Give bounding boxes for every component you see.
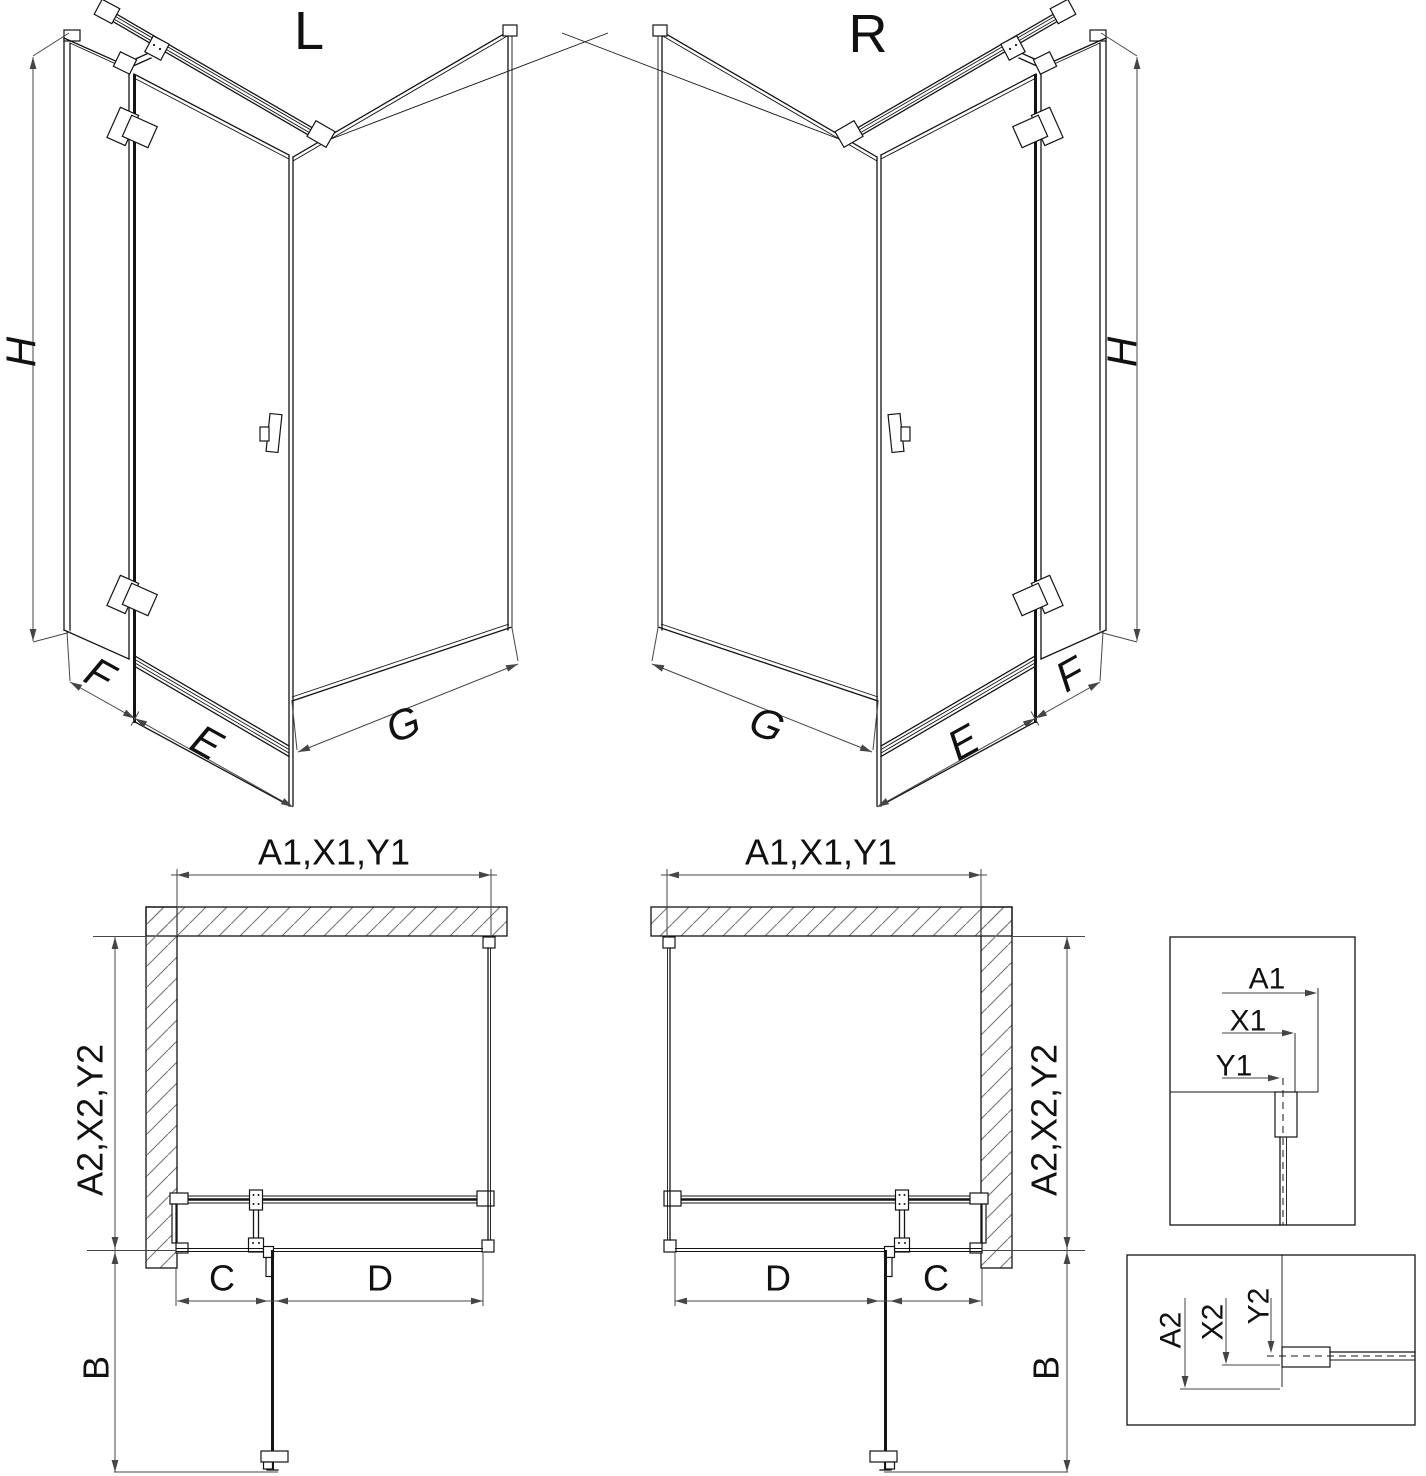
- plan-right-dim-d: D: [765, 1258, 791, 1299]
- detail-width-dim-x1: X1: [1230, 1005, 1267, 1038]
- iso-left-label: L: [294, 1, 324, 61]
- detail-depth-dim-x2: X2: [1197, 1304, 1230, 1341]
- plan-right-dim-width: A1,X1,Y1: [745, 832, 897, 873]
- iso-right-dim-f: F: [1047, 646, 1094, 701]
- iso-right-dim-g: G: [743, 696, 791, 752]
- plan-left-dim-d: D: [367, 1258, 393, 1299]
- plan-right-dim-c: C: [923, 1258, 949, 1299]
- plan-right-dim-depth: A2,X2,Y2: [1024, 1044, 1065, 1196]
- detail-view-width: A1 X1 Y1: [1170, 937, 1355, 1225]
- detail-view-depth: A2 X2 Y2: [1127, 1255, 1415, 1425]
- detail-width-dim-a1: A1: [1249, 963, 1286, 996]
- iso-view-right: R H F E G: [562, 0, 1146, 810]
- plan-left-dim-depth: A2,X2,Y2: [70, 1044, 111, 1196]
- detail-depth-dim-y2: Y2: [1243, 1288, 1276, 1325]
- wall-top: [651, 907, 1012, 936]
- technical-drawing: L H F E G R H F E G: [0, 0, 1426, 1476]
- iso-right-dim-e: E: [939, 714, 987, 769]
- iso-right-dim-h: H: [1099, 336, 1146, 367]
- detail-width-dim-y1: Y1: [1216, 1050, 1253, 1083]
- iso-left-dim-f: F: [77, 647, 124, 702]
- detail-depth-dim-a2: A2: [1155, 1312, 1188, 1349]
- iso-left-dim-h: H: [0, 336, 45, 367]
- plan-left-dim-b: B: [76, 1356, 117, 1380]
- plan-view-left: A1,X1,Y1 A2,X2,Y2 C D B: [70, 832, 507, 1472]
- plan-left-dim-width: A1,X1,Y1: [258, 832, 410, 873]
- wall-top: [146, 907, 507, 936]
- plan-view-right: A1,X1,Y1 A2,X2,Y2 D C B: [651, 832, 1085, 1472]
- iso-left-dim-e: E: [183, 715, 231, 770]
- iso-left-dim-g: G: [379, 696, 427, 752]
- plan-right-dim-b: B: [1026, 1356, 1067, 1380]
- plan-left-dim-c: C: [209, 1258, 235, 1299]
- iso-right-label: R: [849, 4, 888, 64]
- iso-view-left: L H F E G: [0, 0, 608, 810]
